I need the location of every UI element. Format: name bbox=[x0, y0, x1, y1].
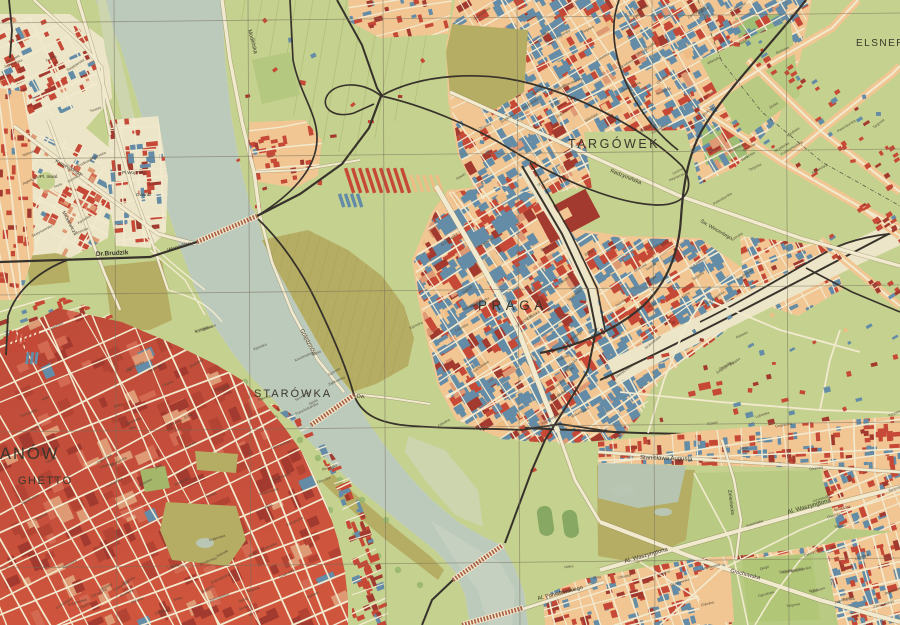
svg-text:TARGÓWEK: TARGÓWEK bbox=[568, 136, 660, 151]
svg-text:GHETTO: GHETTO bbox=[18, 475, 73, 487]
svg-text:Dw.: Dw. bbox=[357, 394, 365, 400]
svg-text:Gwardii: Gwardii bbox=[136, 192, 151, 197]
svg-text:ELSNERÓW: ELSNERÓW bbox=[856, 36, 900, 49]
svg-text:Pl. Inwal.: Pl. Inwal. bbox=[40, 174, 58, 179]
svg-text:Pl.Woj.Pol: Pl.Woj.Pol bbox=[122, 170, 143, 175]
